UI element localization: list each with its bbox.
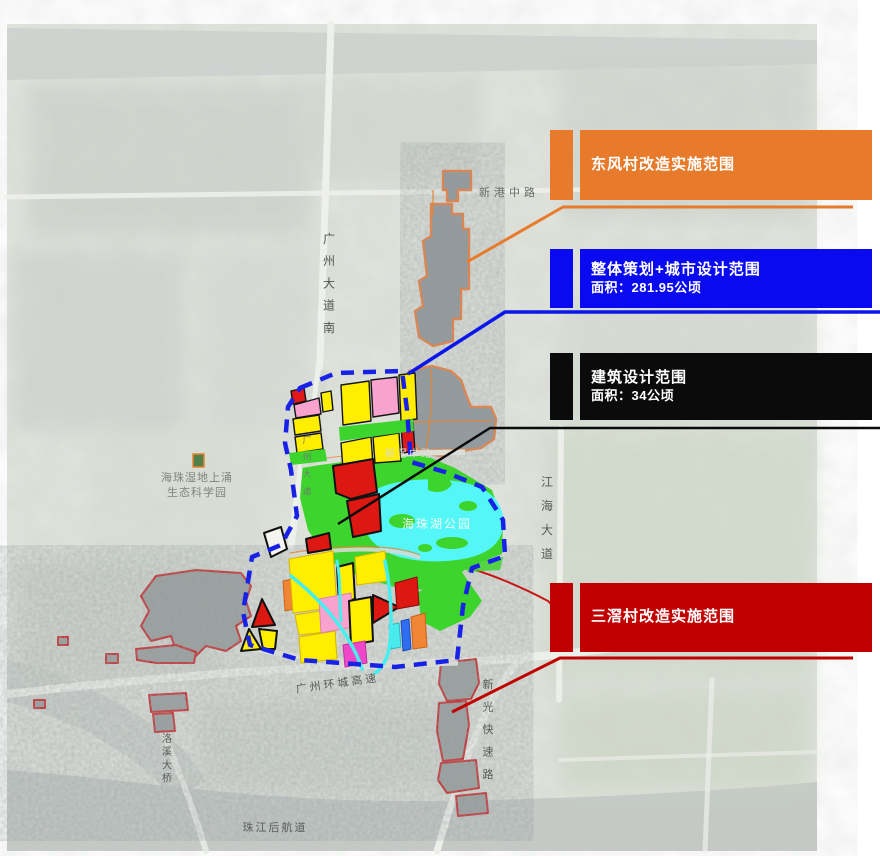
legend-item-building: 建筑设计范围 面积：34公顷 <box>550 353 872 420</box>
label-zhujiang-hangdao: 珠江后航道 <box>243 820 308 834</box>
village-sanjiao-s4 <box>456 793 488 816</box>
label-xingang-zhonglu: 新港中路 <box>479 185 539 199</box>
parcel <box>293 415 321 435</box>
label-haizhuhu-park: 海珠湖公园 <box>402 516 472 531</box>
legend-area: 面积：281.95公顷 <box>591 280 872 296</box>
parcel <box>411 613 427 649</box>
legend-item-sanjiao: 三滘村改造实施范围 <box>550 583 872 652</box>
village-small-2 <box>153 713 175 732</box>
parcel <box>341 381 371 425</box>
legend-box-overall: 整体策划+城市设计范围 面积：281.95公顷 <box>580 249 872 308</box>
legend-label: 东风村改造实施范围 <box>591 156 872 175</box>
parcel <box>401 619 411 651</box>
parcel <box>259 629 277 649</box>
village-small-1 <box>149 693 188 712</box>
village-sanjiao-s3 <box>438 760 479 793</box>
village-tiny-1 <box>106 654 118 663</box>
planning-map-slide: 新港中路 广州大道南 广州大道 海珠湿地上涌 生态科学园 新滘中路 海珠湖公园 … <box>0 0 880 856</box>
parcel <box>333 459 377 499</box>
label-xinjiao-zhonglu: 新滘中路 <box>385 447 433 460</box>
legend-box-dongfeng: 东风村改造实施范围 <box>580 130 872 200</box>
village-tiny-2 <box>58 637 68 645</box>
parcel <box>349 597 373 645</box>
legend-swatch-overall <box>550 249 573 308</box>
legend-label: 三滘村改造实施范围 <box>591 608 872 627</box>
legend-label: 建筑设计范围 <box>591 369 872 388</box>
legend-swatch-sanjiao <box>550 583 573 652</box>
label-wetland-line1: 海珠湿地上涌 <box>161 470 233 484</box>
legend-item-overall: 整体策划+城市设计范围 面积：281.95公顷 <box>550 249 872 308</box>
legend-swatch-building <box>550 353 573 420</box>
parcel <box>355 551 387 585</box>
parcel <box>319 593 353 633</box>
legend-label: 整体策划+城市设计范围 <box>591 261 872 280</box>
legend-area: 面积：34公顷 <box>591 388 872 404</box>
parcel <box>395 577 419 609</box>
legend-swatch-dongfeng <box>550 130 573 200</box>
parcel <box>371 377 399 417</box>
legend-item-dongfeng: 东风村改造实施范围 <box>550 130 872 200</box>
wetland-marker <box>193 454 204 467</box>
map-canvas: 新港中路 广州大道南 广州大道 海珠湿地上涌 生态科学园 新滘中路 海珠湖公园 … <box>0 0 880 856</box>
label-wetland-line2: 生态科学园 <box>167 485 227 499</box>
parcel <box>321 391 333 412</box>
village-tiny-3 <box>34 700 45 708</box>
legend-box-building: 建筑设计范围 面积：34公顷 <box>580 353 872 420</box>
legend-box-sanjiao: 三滘村改造实施范围 <box>580 583 872 652</box>
